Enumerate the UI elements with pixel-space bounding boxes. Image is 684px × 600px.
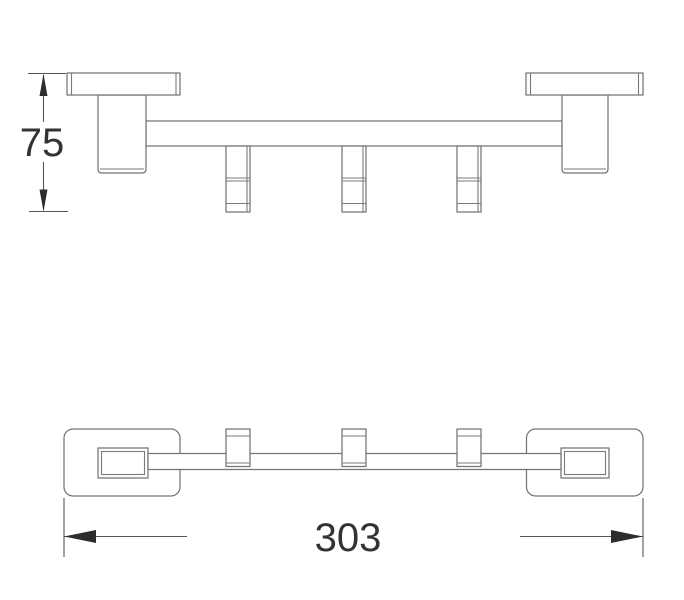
plate-body bbox=[526, 73, 643, 95]
towel-rail-technical-drawing: 75 bbox=[0, 0, 684, 600]
height-dimension: 75 bbox=[20, 74, 68, 212]
mount-post-left-side bbox=[98, 95, 146, 173]
arrowhead-right-icon bbox=[611, 530, 643, 543]
post-body bbox=[98, 95, 146, 173]
wall-plate-right-side bbox=[526, 73, 643, 95]
mount-post-right-side bbox=[562, 95, 608, 173]
arrowhead-down-icon bbox=[40, 190, 48, 212]
hook-2-side bbox=[342, 146, 366, 212]
hook-body bbox=[342, 146, 366, 212]
hook-3-plan bbox=[457, 429, 481, 467]
length-dimension: 303 bbox=[64, 498, 643, 560]
mount-post-left-plan bbox=[98, 448, 148, 478]
hook-1-plan bbox=[226, 429, 250, 467]
hook-3-side bbox=[457, 146, 481, 212]
plan-view bbox=[64, 429, 643, 496]
hook-body bbox=[457, 146, 481, 212]
hook-body bbox=[457, 429, 481, 467]
post-section-outer bbox=[98, 448, 148, 478]
mount-post-right-plan bbox=[561, 448, 609, 478]
arrowhead-up-icon bbox=[40, 74, 48, 96]
post-section-outer bbox=[561, 448, 609, 478]
hook-2-plan bbox=[342, 429, 366, 467]
drawing-canvas: 75 bbox=[0, 0, 684, 600]
side-view bbox=[67, 73, 643, 212]
hook-body bbox=[226, 146, 250, 212]
hook-body bbox=[342, 429, 366, 467]
plate-body bbox=[67, 73, 180, 95]
arrowhead-left-icon bbox=[64, 530, 96, 543]
height-dimension-label: 75 bbox=[20, 121, 65, 165]
rail-bar-side bbox=[146, 121, 562, 146]
hook-body bbox=[226, 429, 250, 467]
hook-1-side bbox=[226, 146, 250, 212]
post-body bbox=[562, 95, 608, 173]
length-dimension-label: 303 bbox=[315, 516, 382, 560]
wall-plate-left-side bbox=[67, 73, 180, 95]
